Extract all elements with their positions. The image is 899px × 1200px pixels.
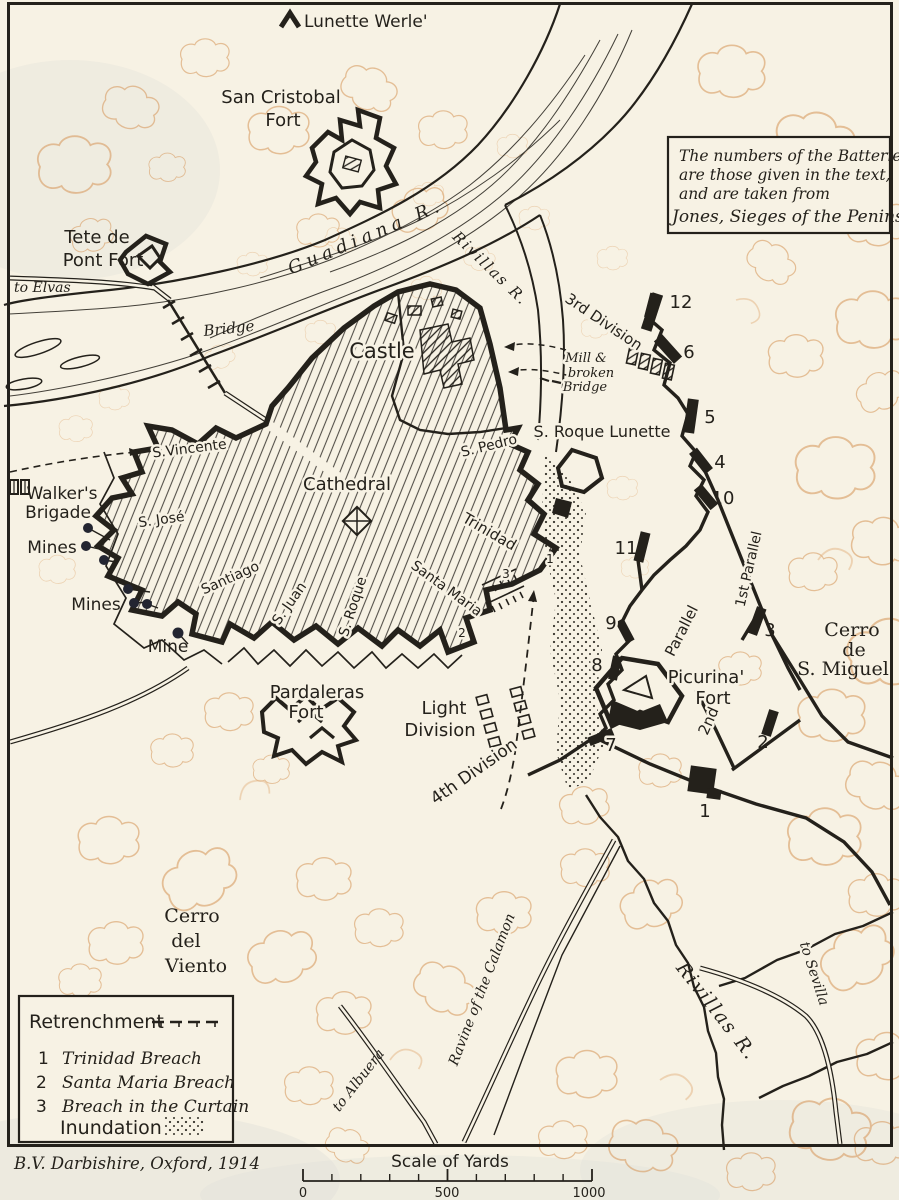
battery-6-number: 6: [683, 342, 694, 363]
badajoz-city: [96, 284, 556, 652]
battery-1: [687, 765, 721, 800]
label-to-elvas: to Elvas: [14, 280, 71, 296]
scale-500: 500: [435, 1186, 460, 1200]
label-s-roque-lunette: S. Roque Lunette: [534, 422, 671, 441]
breach-1-marker: 1: [546, 552, 554, 566]
label-mines-2: Mines: [71, 595, 121, 615]
label-bridge: Bridge: [202, 317, 256, 340]
label-san-cristobal-1: San Cristobal: [221, 87, 340, 108]
label-light-division-1: Light: [422, 698, 467, 719]
bridge-structure: [163, 300, 225, 393]
legend-title: Retrenchment: [29, 1011, 164, 1033]
label-parallel: Parallel: [661, 602, 702, 659]
legend-item-3-name: Breach in the Curtain: [61, 1097, 249, 1117]
label-mill-2: broken: [568, 366, 614, 381]
battery-8-number: 8: [591, 655, 602, 676]
scale-title: Scale of Yards: [391, 1152, 509, 1172]
label-lunette-werle: Lunette Werle': [304, 12, 428, 32]
label-cerro-viento-3: Viento: [164, 955, 227, 977]
note-line-3: and are taken from: [679, 185, 830, 203]
label-cerro-viento-1: Cerro: [164, 905, 219, 927]
battery-12-number: 12: [670, 292, 693, 313]
label-san-cristobal-2: Fort: [265, 110, 300, 131]
legend-item-3-num: 3: [36, 1097, 47, 1117]
rivillas-river-lower: [586, 795, 893, 1150]
label-3rd-division: 3rd Division: [562, 289, 646, 354]
label-pardaleras-1: Pardaleras: [270, 682, 365, 703]
label-mine: Mine: [148, 637, 189, 657]
label-to-albuera: to Albuera: [330, 1046, 388, 1114]
legend-item-1-num: 1: [38, 1049, 49, 1069]
label-picurina-2: Fort: [695, 688, 730, 709]
battery-3-number: 3: [764, 620, 775, 641]
battery-5: [683, 398, 699, 433]
scale-0: 0: [299, 1186, 307, 1200]
label-tete-1: Tete de: [63, 227, 129, 248]
scale-1000: 1000: [572, 1186, 605, 1200]
note-box: The numbers of the Batteries are those g…: [668, 137, 899, 233]
legend-item-2-num: 2: [36, 1073, 47, 1093]
note-line-1: The numbers of the Batteries: [679, 147, 899, 165]
label-walkers-2: Brigade: [25, 503, 91, 523]
lunette-werle-arrow-icon: [281, 13, 299, 27]
label-walkers-1: Walker's: [26, 484, 97, 504]
label-to-sevilla: to Sevilla: [796, 940, 832, 1008]
label-mines-1: Mines: [27, 538, 77, 558]
label-cerro-viento-2: del: [171, 930, 200, 952]
label-guadiana: Guadiana R.: [285, 195, 447, 280]
battery-9: [615, 618, 634, 643]
breach-3-marker: 3: [502, 567, 510, 581]
label-1st-parallel: 1st Parallel: [733, 530, 766, 609]
legend-box: Retrenchment 1 Trinidad Breach 2 Santa M…: [19, 996, 249, 1142]
battery-1-number: 1: [699, 801, 710, 822]
label-pardaleras-2: Fort: [288, 702, 323, 723]
san-cristobal-fort: [306, 110, 396, 214]
siege-map: The numbers of the Batteries are those g…: [0, 0, 899, 1200]
label-picurina-1: Picurina': [668, 667, 745, 688]
battery-2-number: 2: [757, 732, 768, 753]
legend-item-1-name: Trinidad Breach: [62, 1049, 202, 1069]
legend-inundation-label: Inundation: [60, 1117, 162, 1139]
battery-7-number: 7: [605, 735, 616, 756]
label-cerro-miguel-3: S. Miguel: [797, 658, 889, 680]
battery-5-number: 5: [704, 407, 715, 428]
battery-9-number: 9: [605, 613, 616, 634]
legend-item-2-name: Santa Maria Breach: [62, 1073, 235, 1093]
battery-10-number: 10: [712, 488, 735, 509]
legend-inundation-swatch: [164, 1116, 204, 1136]
label-tete-2: Pont Fort: [63, 250, 144, 271]
label-cathedral: Cathedral: [303, 474, 391, 495]
battery-4-number: 4: [714, 452, 725, 473]
rivillas-river-upper: [505, 205, 572, 452]
label-castle: Castle: [349, 339, 414, 363]
note-line-4: Jones, Sieges of the Peninsula: [669, 207, 899, 227]
credit: B.V. Darbishire, Oxford, 1914: [13, 1154, 260, 1173]
label-4th-division: 4th Division: [427, 735, 521, 809]
label-mill-3: Bridge: [562, 380, 608, 395]
breach-2-marker: 2: [458, 626, 466, 640]
battery-11-number: 11: [615, 538, 638, 559]
label-mill-1: Mill &: [564, 351, 607, 366]
note-line-2: are those given in the text,: [679, 166, 891, 184]
label-cerro-miguel-1: Cerro: [824, 619, 879, 641]
label-light-division-2: Division: [404, 720, 475, 741]
map-canvas: The numbers of the Batteries are those g…: [0, 0, 899, 1200]
